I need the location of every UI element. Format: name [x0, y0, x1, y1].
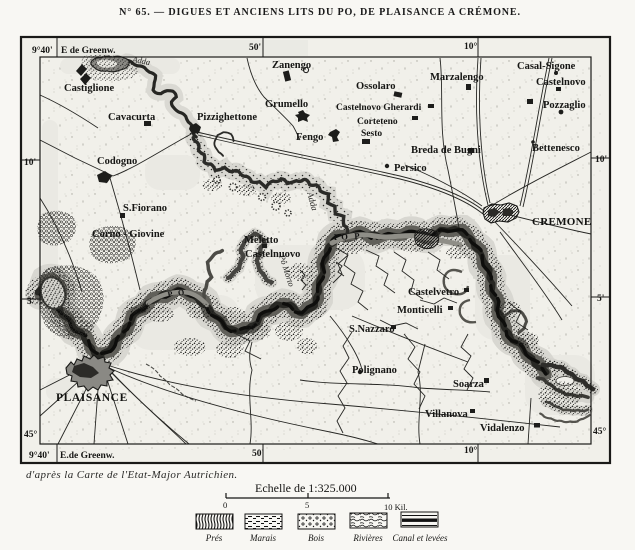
- svg-text:45°: 45°: [24, 429, 38, 440]
- svg-text:Castiglione: Castiglione: [64, 83, 115, 94]
- svg-text:45°: 45°: [593, 426, 607, 437]
- svg-text:50': 50': [249, 43, 261, 53]
- svg-text:Pizzighettone: Pizzighettone: [197, 112, 257, 123]
- svg-text:Marzalengo: Marzalengo: [430, 72, 484, 83]
- svg-text:10°: 10°: [464, 41, 478, 52]
- svg-text:Grumello: Grumello: [265, 99, 308, 110]
- svg-text:Castelnovo: Castelnovo: [536, 77, 586, 88]
- svg-text:PO P.: PO P.: [334, 230, 366, 242]
- svg-text:Castelnovo Gherardi: Castelnovo Gherardi: [336, 103, 422, 113]
- svg-text:Corno - Giovine: Corno - Giovine: [92, 229, 165, 240]
- svg-text:9°40': 9°40': [32, 45, 53, 56]
- svg-text:Persico: Persico: [394, 163, 427, 174]
- svg-text:E de Greenw.: E de Greenw.: [61, 46, 115, 56]
- svg-text:9°40': 9°40': [29, 450, 50, 461]
- svg-text:Rivières: Rivières: [352, 533, 383, 543]
- svg-text:Breda de Bugni: Breda de Bugni: [411, 145, 481, 156]
- svg-text:Echelle de 1:325.000: Echelle de 1:325.000: [255, 481, 357, 495]
- svg-text:5: 5: [305, 500, 309, 510]
- svg-text:Vidalenzo: Vidalenzo: [480, 423, 525, 434]
- svg-text:N° 65. — DIGUES ET ANCIENS LIT: N° 65. — DIGUES ET ANCIENS LITS DU PO, D…: [119, 6, 521, 18]
- svg-text:Cavacurta: Cavacurta: [108, 112, 156, 123]
- svg-text:Pozzaglio: Pozzaglio: [543, 100, 586, 111]
- svg-text:Fengo: Fengo: [296, 132, 323, 143]
- svg-text:S.Nazzaro: S.Nazzaro: [349, 324, 395, 335]
- svg-text:10 Kil.: 10 Kil.: [384, 502, 408, 512]
- svg-text:Villanova: Villanova: [425, 409, 469, 420]
- svg-text:Zanengo: Zanengo: [272, 60, 311, 71]
- svg-text:Prés: Prés: [205, 533, 223, 543]
- svg-text:S.Fiorano: S.Fiorano: [123, 203, 167, 214]
- svg-text:Meletto: Meletto: [244, 235, 278, 246]
- svg-text:Bettenesco: Bettenesco: [532, 143, 580, 154]
- svg-text:50': 50': [252, 449, 264, 459]
- svg-text:Codogno: Codogno: [97, 156, 137, 167]
- svg-text:Monticelli: Monticelli: [397, 305, 443, 316]
- svg-text:Casal-Sigone: Casal-Sigone: [517, 61, 576, 72]
- svg-text:CREMONE: CREMONE: [532, 216, 592, 228]
- svg-text:Corteteno: Corteteno: [357, 117, 398, 127]
- svg-text:Sesto: Sesto: [361, 129, 382, 139]
- svg-text:Polignano: Polignano: [352, 365, 397, 376]
- svg-text:Canal et levées: Canal et levées: [393, 533, 448, 543]
- svg-text:Castelnuovo: Castelnuovo: [245, 249, 300, 260]
- svg-text:10': 10': [595, 155, 607, 165]
- svg-text:0: 0: [223, 500, 227, 510]
- svg-text:10': 10': [24, 158, 36, 168]
- svg-text:5': 5': [27, 297, 34, 307]
- svg-text:Soarza: Soarza: [453, 379, 485, 390]
- svg-text:PLAISANCE: PLAISANCE: [56, 392, 128, 404]
- svg-text:5': 5': [597, 294, 604, 304]
- svg-text:E.de Greenw.: E.de Greenw.: [60, 451, 114, 461]
- svg-text:Ossolaro: Ossolaro: [356, 81, 395, 92]
- svg-text:Castelvetro: Castelvetro: [408, 287, 459, 298]
- svg-text:d'après la Carte de l'Etat-Maj: d'après la Carte de l'Etat-Major Autrich…: [26, 469, 238, 481]
- svg-text:10°: 10°: [464, 445, 478, 456]
- svg-text:Bois: Bois: [308, 533, 324, 543]
- svg-text:Marais: Marais: [249, 533, 277, 543]
